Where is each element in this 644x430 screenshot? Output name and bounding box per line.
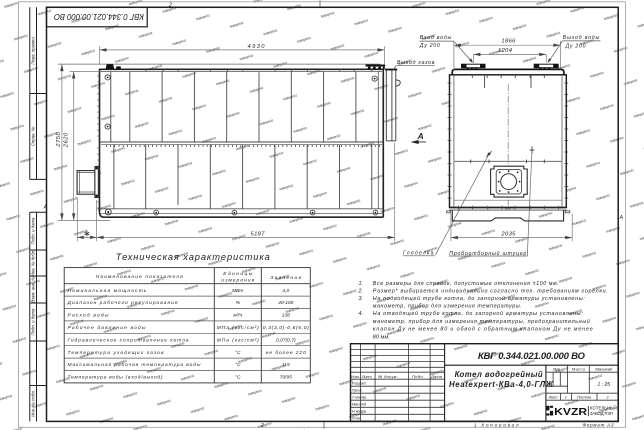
svg-text:2: 2	[260, 423, 264, 429]
svg-text:Масса: Масса	[572, 367, 586, 372]
svg-text:Техническая характеристика: Техническая характеристика	[116, 252, 270, 262]
svg-text:Значение: Значение	[270, 275, 301, 281]
svg-text:МПа (кгс/см²): МПа (кгс/см²)	[217, 337, 259, 343]
svg-text:Копировал: Копировал	[482, 422, 519, 427]
svg-text:°С: °С	[235, 375, 241, 381]
svg-text:80 мм.: 80 мм.	[373, 334, 390, 340]
svg-text:5187: 5187	[251, 231, 266, 237]
svg-text:1866: 1866	[501, 38, 516, 44]
svg-text:не более 220: не более 220	[266, 350, 306, 356]
svg-text:1 : 25: 1 : 25	[598, 382, 611, 388]
svg-text:ЗАВОД РЭП: ЗАВОД РЭП	[590, 411, 613, 416]
svg-text:Лист: Лист	[548, 395, 559, 400]
svg-text:Расход воды: Расход воды	[68, 313, 109, 319]
svg-text:А: А	[417, 131, 424, 141]
svg-text:А: А	[619, 215, 624, 221]
svg-text:Максимальная рабочая температу: Максимальная рабочая температура воды	[68, 362, 201, 368]
svg-text:Ду 200: Ду 200	[419, 43, 440, 49]
svg-text:2035: 2035	[500, 231, 516, 237]
svg-text:Heatexpert-КВа-4,0-ГЛЖ: Heatexpert-КВа-4,0-ГЛЖ	[449, 380, 554, 389]
svg-text:клапан Ду не менее 80 и обвод: клапан Ду не менее 80 и обвод с обратным…	[373, 327, 593, 333]
svg-text:Подп. и дата: Подп. и дата	[30, 217, 35, 245]
svg-text:Формат А3: Формат А3	[583, 422, 614, 427]
svg-text:Нач.отд.: Нач.отд.	[352, 401, 367, 406]
svg-text:Т. контр.: Т. контр.	[352, 394, 367, 399]
svg-text:м³/ч: м³/ч	[233, 313, 242, 319]
svg-text:Номинальная мощность: Номинальная мощность	[68, 288, 147, 294]
svg-text:Температура уходящих газов: Температура уходящих газов	[68, 350, 164, 356]
svg-text:Разраб.: Разраб.	[352, 380, 367, 385]
svg-text:1: 1	[565, 395, 567, 400]
svg-text:На подводящей трубе котла, до: На подводящей трубе котла, до запорной а…	[373, 295, 586, 302]
svg-text:Наименование показателя: Наименование показателя	[96, 274, 183, 280]
svg-text:138: 138	[282, 313, 290, 319]
svg-text:0,07(0,7): 0,07(0,7)	[276, 337, 296, 343]
svg-text:Лит.: Лит.	[552, 367, 561, 372]
svg-text:40-100: 40-100	[278, 300, 294, 306]
svg-text:115: 115	[282, 362, 290, 368]
svg-text:°С: °С	[235, 350, 241, 356]
svg-text:Н. контр.: Н. контр.	[352, 409, 367, 414]
svg-text:Рабочее давление воды: Рабочее давление воды	[68, 325, 146, 331]
svg-text:Подп. и дата: Подп. и дата	[30, 308, 35, 336]
svg-text:КОТЕЛЬНЫЙ: КОТЕЛЬНЫЙ	[590, 406, 617, 411]
svg-text:Диапазон рабочего регулировани: Диапазон рабочего регулирования	[67, 300, 178, 306]
svg-text:манометр, прибор для измерения: манометр, прибор для измерения температу…	[373, 318, 590, 325]
svg-text:Перв. примен.: Перв. примен.	[30, 36, 35, 65]
svg-text:Утв.: Утв.	[352, 416, 361, 421]
svg-text:Выход газов: Выход газов	[397, 60, 435, 66]
svg-text:Справ. №: Справ. №	[30, 126, 35, 146]
svg-text:№ докум.: № докум.	[378, 374, 398, 379]
svg-text:Размер* выбирается индивидуаль: Размер* выбирается индивидуально согласн…	[373, 288, 608, 294]
svg-text:МВт: МВт	[232, 288, 243, 294]
svg-text:КВГ 0.344.021.00.000 ВО: КВГ 0.344.021.00.000 ВО	[54, 12, 144, 21]
svg-text:°С: °С	[235, 362, 241, 368]
svg-text:Котел водогрейный: Котел водогрейный	[455, 370, 543, 379]
svg-text:2.: 2.	[358, 288, 364, 294]
svg-text:Гидравлическое сопротивление к: Гидравлическое сопротивление котла	[68, 337, 189, 343]
svg-text:КВГ 0.344.021.00.000 ВО: КВГ 0.344.021.00.000 ВО	[478, 351, 586, 362]
svg-text:1204: 1204	[498, 48, 512, 54]
svg-text:%: %	[236, 300, 241, 306]
svg-text:2620: 2620	[64, 132, 70, 148]
svg-text:Инв. № подл.: Инв. № подл.	[30, 390, 35, 417]
svg-text:Все размеры для справок, допус: Все размеры для справок, допустимые откл…	[373, 281, 559, 287]
svg-text:4,0: 4,0	[282, 288, 289, 294]
svg-text:Вход воды: Вход воды	[420, 35, 452, 41]
svg-text:Единицы: Единицы	[223, 271, 252, 277]
svg-text:Пров.: Пров.	[352, 387, 363, 392]
svg-text:1.: 1.	[359, 281, 364, 287]
svg-text:4930: 4930	[248, 44, 266, 50]
svg-text:3.: 3.	[359, 296, 364, 302]
svg-text:0,3(3,0)-0,6(6,0): 0,3(3,0)-0,6(6,0)	[263, 325, 309, 331]
svg-text:70/95: 70/95	[280, 375, 293, 381]
svg-text:Изм.: Изм.	[351, 374, 360, 379]
svg-text:Масштаб: Масштаб	[595, 367, 613, 372]
svg-text:манометр, прибор для измерения: манометр, прибор для измерения температу…	[373, 303, 522, 309]
svg-text:измерения: измерения	[221, 278, 254, 283]
svg-text:Дата: Дата	[430, 374, 443, 379]
svg-text:Температура воды (вход/выход): Температура воды (вход/выход)	[68, 375, 163, 381]
svg-text:Инв. № дубл.: Инв. № дубл.	[30, 250, 35, 276]
svg-text:Подп.: Подп.	[412, 374, 424, 379]
svg-text:Выход воды: Выход воды	[563, 35, 600, 41]
svg-text:На отводящей трубе котла, до з: На отводящей трубе котла, до запорной ар…	[373, 310, 584, 317]
svg-text:4.: 4.	[359, 311, 364, 317]
svg-text:Листов: Листов	[576, 395, 591, 400]
svg-text:2750: 2750	[56, 131, 62, 147]
svg-text:KVZR: KVZR	[554, 406, 587, 418]
svg-text:Взам. инв. №: Взам. инв. №	[30, 276, 35, 303]
svg-text:Лист: Лист	[361, 374, 373, 379]
svg-text:Ду 200: Ду 200	[565, 44, 586, 50]
svg-text:МПа (кгс/см²): МПа (кгс/см²)	[217, 325, 259, 331]
